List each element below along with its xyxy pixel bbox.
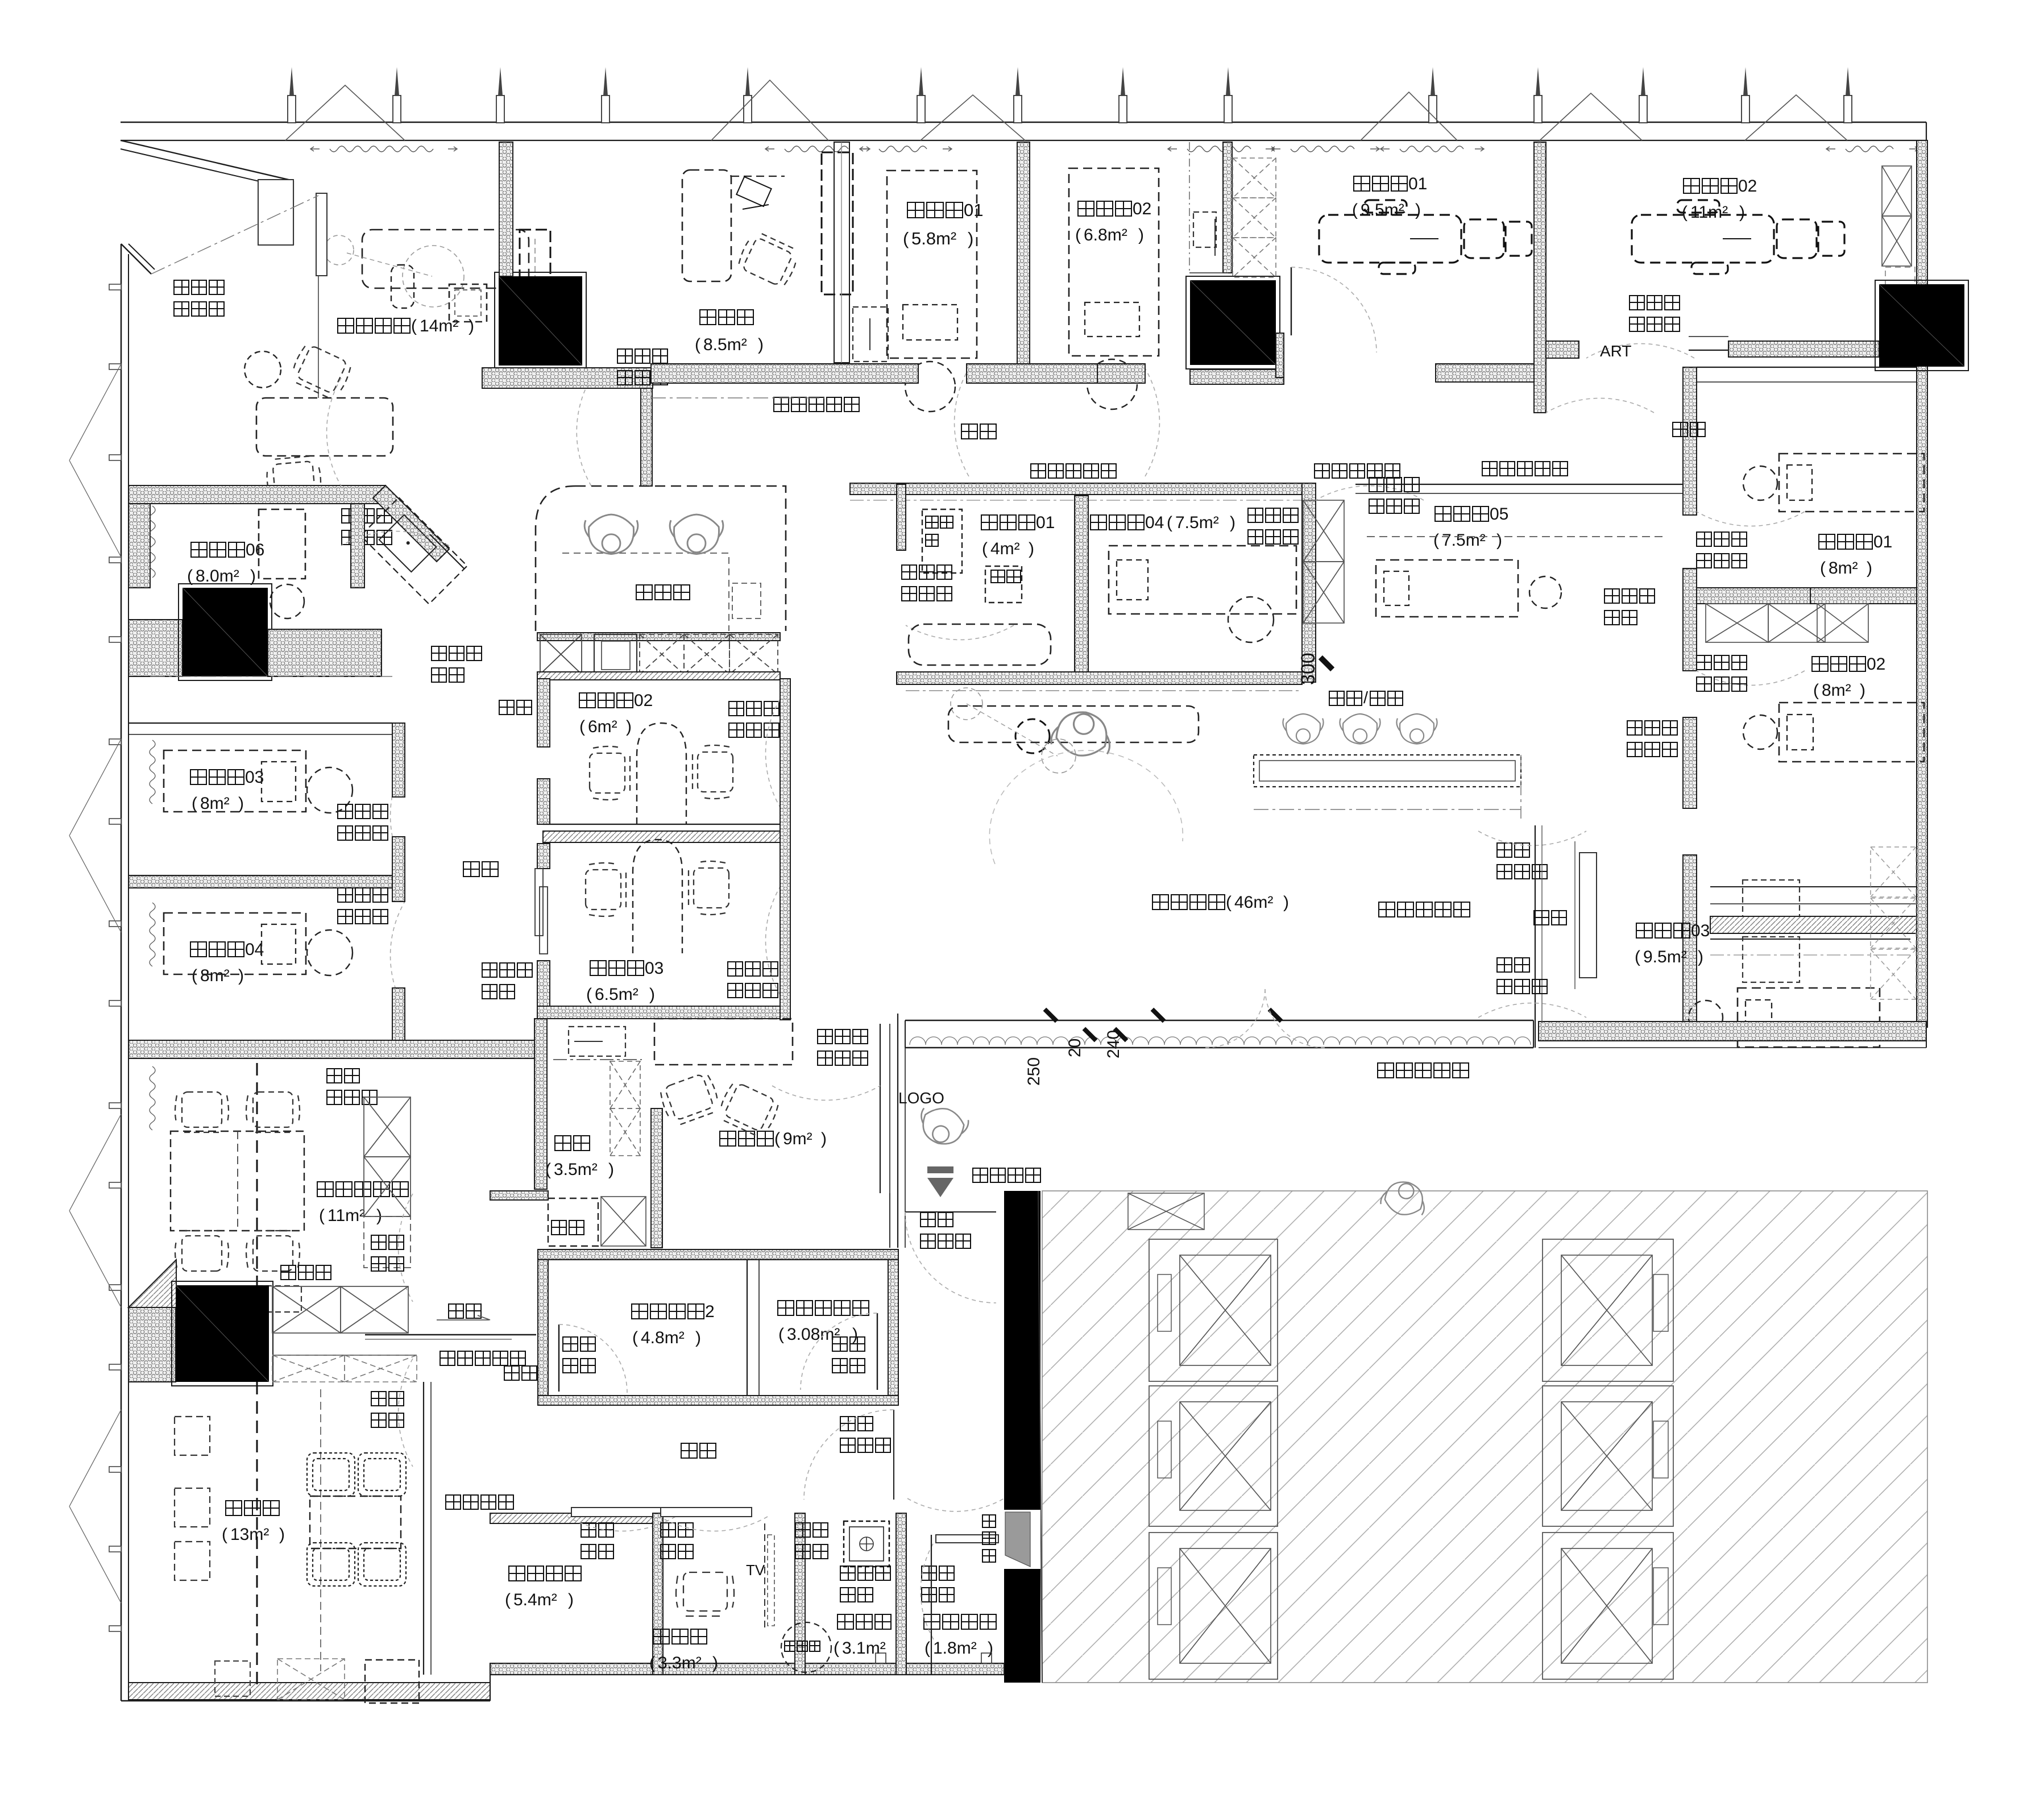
svg-text:): )	[468, 317, 474, 335]
svg-text:(: (	[1813, 681, 1819, 700]
svg-text:): )	[626, 717, 632, 736]
svg-text:): )	[695, 1328, 701, 1347]
svg-text:): )	[1860, 681, 1865, 700]
svg-text:ART: ART	[1600, 342, 1632, 360]
svg-text:8.0m²: 8.0m²	[196, 567, 239, 586]
svg-text:(: (	[1226, 893, 1232, 912]
svg-text:(: (	[1167, 513, 1172, 532]
svg-text:): )	[988, 1639, 993, 1658]
svg-text:8m²: 8m²	[200, 966, 230, 985]
svg-text:240: 240	[1104, 1030, 1123, 1058]
svg-text:04: 04	[1145, 513, 1164, 532]
svg-text:3.3m²: 3.3m²	[658, 1654, 702, 1672]
svg-text:): )	[1230, 513, 1235, 532]
svg-text:): )	[568, 1591, 574, 1609]
svg-text:): )	[758, 335, 764, 354]
svg-text:14m²: 14m²	[420, 317, 458, 335]
svg-text:(: (	[903, 229, 909, 248]
svg-text:(: (	[834, 1639, 839, 1658]
svg-text:(: (	[187, 567, 193, 586]
svg-text:): )	[376, 1206, 382, 1225]
svg-text:): )	[1415, 201, 1421, 219]
svg-text:01: 01	[1036, 513, 1055, 532]
svg-text:3.1m²: 3.1m²	[842, 1639, 886, 1658]
svg-text:02: 02	[1133, 200, 1151, 218]
svg-text:1.8m²: 1.8m²	[933, 1639, 977, 1658]
svg-text:LOGO: LOGO	[898, 1089, 944, 1107]
svg-text:/: /	[1363, 689, 1369, 707]
svg-text:13m²: 13m²	[230, 1525, 269, 1544]
svg-text:(: (	[1075, 226, 1081, 244]
svg-text:): )	[1698, 948, 1703, 966]
svg-text:6.8m²: 6.8m²	[1084, 226, 1127, 244]
svg-text:): )	[821, 1130, 827, 1148]
svg-text:(: (	[632, 1328, 638, 1347]
svg-text:01: 01	[1873, 533, 1892, 551]
svg-text:(: (	[505, 1591, 511, 1609]
svg-text:03: 03	[645, 959, 664, 978]
svg-text:): )	[608, 1160, 614, 1179]
svg-text:8.5m²: 8.5m²	[703, 335, 747, 354]
svg-text:(: (	[222, 1525, 227, 1544]
svg-text:01: 01	[1408, 175, 1427, 193]
svg-text:(: (	[192, 794, 197, 813]
svg-text:9.5m²: 9.5m²	[1361, 201, 1404, 219]
svg-text:2: 2	[705, 1302, 715, 1321]
svg-text:(: (	[774, 1130, 780, 1148]
svg-text:): )	[968, 229, 973, 248]
svg-text:20: 20	[1065, 1039, 1084, 1057]
svg-text:(: (	[586, 985, 592, 1004]
svg-text:9.5m²: 9.5m²	[1643, 948, 1687, 966]
svg-text:(: (	[1635, 948, 1640, 966]
svg-text:(: (	[1820, 559, 1826, 578]
svg-text:250: 250	[1025, 1057, 1043, 1086]
svg-text:02: 02	[1738, 177, 1757, 196]
svg-text:): )	[1867, 559, 1872, 578]
svg-text:05: 05	[1490, 505, 1508, 524]
svg-text:02: 02	[1867, 655, 1885, 674]
svg-text:8m²: 8m²	[1822, 681, 1851, 700]
svg-text:11m²: 11m²	[327, 1206, 365, 1225]
svg-text:): )	[1138, 226, 1144, 244]
svg-text:4m²: 4m²	[990, 539, 1020, 558]
svg-text:3.5m²: 3.5m²	[554, 1160, 598, 1179]
svg-text:): )	[238, 794, 244, 813]
svg-text:): )	[1283, 893, 1289, 912]
svg-text:(: (	[319, 1206, 325, 1225]
svg-text:4.8m²: 4.8m²	[641, 1328, 685, 1347]
svg-text:): )	[250, 567, 256, 586]
svg-text:6.5m²: 6.5m²	[595, 985, 639, 1004]
svg-text:(: (	[411, 317, 417, 335]
svg-text:7.5m²: 7.5m²	[1175, 513, 1219, 532]
svg-text:03: 03	[1691, 921, 1710, 940]
svg-text:8m²: 8m²	[1829, 559, 1858, 578]
svg-text:(: (	[695, 335, 700, 354]
svg-text:): )	[712, 1654, 718, 1672]
svg-text:7.5m²: 7.5m²	[1442, 531, 1486, 550]
svg-text:(: (	[579, 717, 585, 736]
svg-text:): )	[1496, 531, 1502, 550]
svg-text:8m²: 8m²	[200, 794, 230, 813]
svg-text:300: 300	[1297, 653, 1319, 685]
svg-text:): )	[279, 1525, 285, 1544]
svg-text:(: (	[649, 1654, 655, 1672]
svg-text:(: (	[1433, 531, 1439, 550]
svg-text:): )	[238, 966, 244, 985]
svg-text:(: (	[192, 966, 197, 985]
svg-text:5.4m²: 5.4m²	[513, 1591, 557, 1609]
svg-text:): )	[649, 985, 655, 1004]
svg-text:): )	[1029, 539, 1034, 558]
svg-text:02: 02	[634, 691, 653, 710]
svg-text:46m²: 46m²	[1234, 893, 1273, 912]
svg-text:5.8m²: 5.8m²	[911, 229, 956, 248]
svg-text:01: 01	[964, 200, 983, 220]
svg-text:(: (	[1352, 201, 1358, 219]
svg-text:): )	[1739, 203, 1745, 222]
svg-text:06: 06	[246, 541, 264, 559]
svg-text:(: (	[924, 1639, 930, 1658]
svg-text:9m²: 9m²	[783, 1130, 812, 1148]
svg-text:TV: TV	[746, 1562, 765, 1579]
svg-text:(: (	[982, 539, 988, 558]
svg-text:6m²: 6m²	[588, 717, 617, 736]
svg-text:(: (	[778, 1325, 784, 1344]
